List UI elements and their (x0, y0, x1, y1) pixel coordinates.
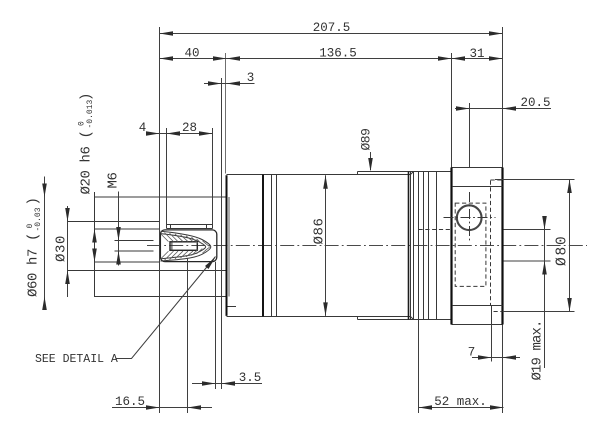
svg-text:Ø86: Ø86 (312, 217, 328, 244)
svg-text:Ø20 h6 (: Ø20 h6 ( (79, 130, 95, 194)
svg-text:3: 3 (247, 71, 255, 85)
svg-text:207.5: 207.5 (313, 21, 351, 35)
svg-text:16.5: 16.5 (115, 395, 145, 409)
svg-text:136.5: 136.5 (319, 47, 357, 61)
svg-text:4: 4 (139, 121, 147, 135)
svg-text:3.5: 3.5 (239, 371, 262, 385)
svg-text:SEE DETAIL A: SEE DETAIL A (35, 353, 118, 366)
svg-text:Ø60 h7 (: Ø60 h7 ( (26, 233, 42, 297)
svg-text:Ø19 max.: Ø19 max. (530, 320, 546, 380)
svg-text:7: 7 (468, 346, 476, 360)
svg-text:31: 31 (469, 47, 484, 61)
svg-text:52 max.: 52 max. (434, 395, 487, 409)
svg-text:Ø89: Ø89 (359, 129, 374, 151)
svg-text:Ø30: Ø30 (54, 235, 70, 262)
svg-text:-0.03: -0.03 (34, 207, 43, 231)
svg-text:28: 28 (182, 121, 197, 135)
svg-text:40: 40 (184, 47, 199, 61)
svg-text:-0.013: -0.013 (86, 99, 95, 128)
svg-text:): ) (79, 93, 95, 101)
svg-text:20.5: 20.5 (520, 96, 550, 110)
svg-text:M6: M6 (106, 172, 122, 188)
svg-text:Ø80: Ø80 (555, 234, 571, 266)
svg-text:): ) (26, 197, 42, 205)
